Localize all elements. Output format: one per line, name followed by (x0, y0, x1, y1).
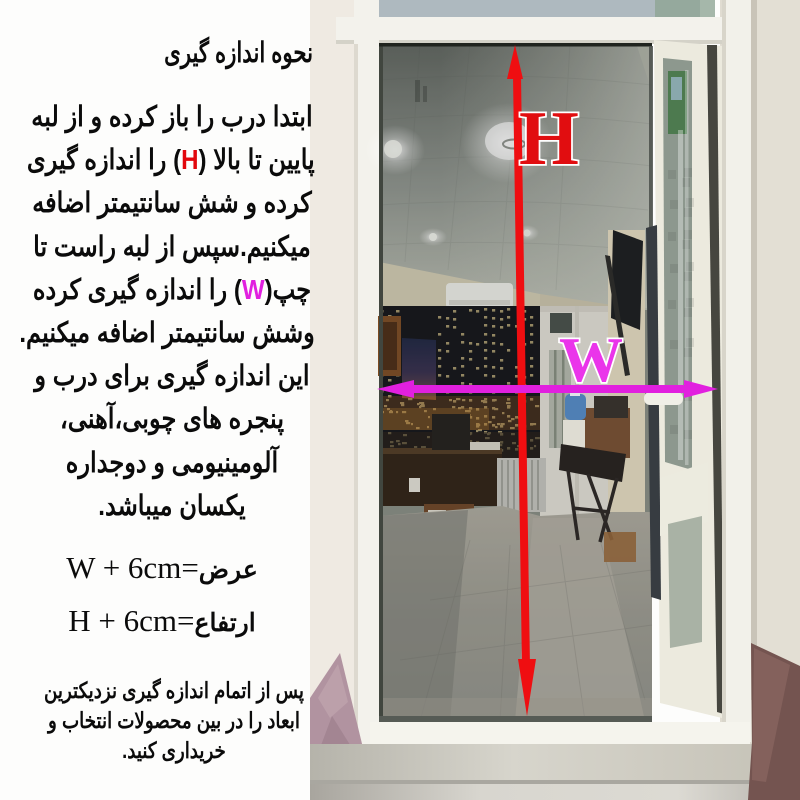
svg-text:W: W (559, 324, 623, 395)
svg-text:H: H (519, 95, 579, 181)
